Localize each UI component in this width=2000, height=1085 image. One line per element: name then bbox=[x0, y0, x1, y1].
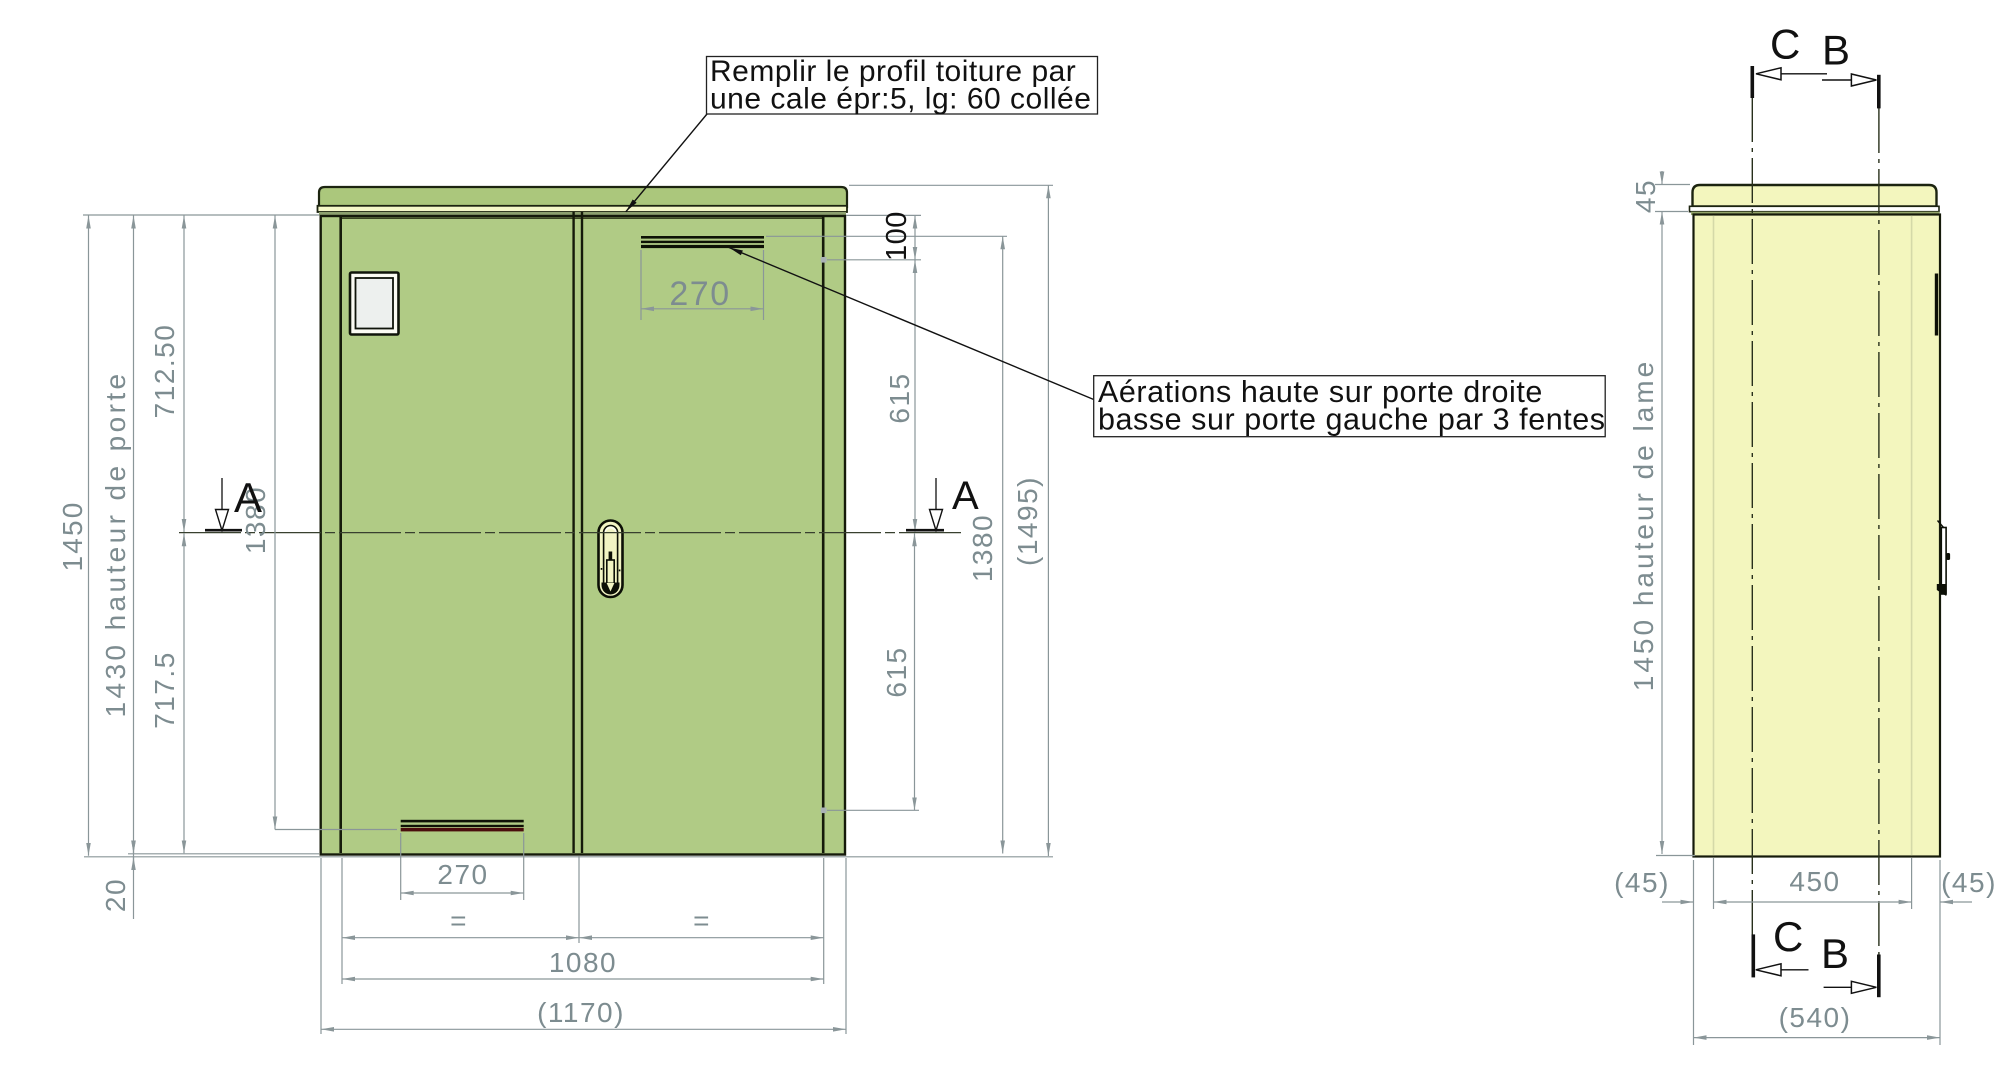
svg-text:(45): (45) bbox=[1941, 867, 1997, 898]
svg-text:450: 450 bbox=[1789, 866, 1840, 897]
svg-text:C: C bbox=[1770, 21, 1800, 68]
svg-text:(540): (540) bbox=[1779, 1002, 1852, 1033]
svg-text:270: 270 bbox=[669, 275, 730, 313]
svg-text:1450: 1450 bbox=[57, 500, 88, 571]
svg-text:=: = bbox=[693, 905, 711, 936]
svg-text:712.50: 712.50 bbox=[149, 324, 180, 419]
svg-text:B: B bbox=[1822, 27, 1850, 74]
svg-text:une cale épr:5, lg: 60 collée: une cale épr:5, lg: 60 collée bbox=[710, 83, 1091, 116]
svg-text:615: 615 bbox=[881, 646, 912, 697]
svg-text:B: B bbox=[1821, 930, 1849, 977]
svg-text:A: A bbox=[952, 474, 979, 518]
svg-text:717.5: 717.5 bbox=[149, 651, 180, 729]
svg-text:(1495): (1495) bbox=[1012, 476, 1043, 566]
svg-text:270: 270 bbox=[437, 859, 488, 890]
svg-text:basse sur porte gauche par 3 f: basse sur porte gauche par 3 fentes bbox=[1098, 403, 1606, 437]
svg-text:C: C bbox=[1773, 913, 1803, 960]
svg-text:=: = bbox=[450, 905, 468, 936]
svg-text:615: 615 bbox=[884, 372, 915, 423]
svg-text:1380: 1380 bbox=[967, 514, 998, 582]
svg-text:(1170): (1170) bbox=[537, 997, 625, 1028]
svg-text:45: 45 bbox=[1630, 179, 1661, 213]
svg-text:20: 20 bbox=[100, 878, 131, 912]
svg-text:A: A bbox=[234, 474, 262, 521]
svg-text:100: 100 bbox=[881, 211, 913, 261]
svg-text:(45): (45) bbox=[1614, 867, 1670, 898]
svg-text:1080: 1080 bbox=[549, 947, 617, 978]
svg-text:1450 hauteur de lame: 1450 hauteur de lame bbox=[1628, 359, 1659, 691]
svg-text:1430 hauteur de porte: 1430 hauteur de porte bbox=[100, 371, 131, 718]
